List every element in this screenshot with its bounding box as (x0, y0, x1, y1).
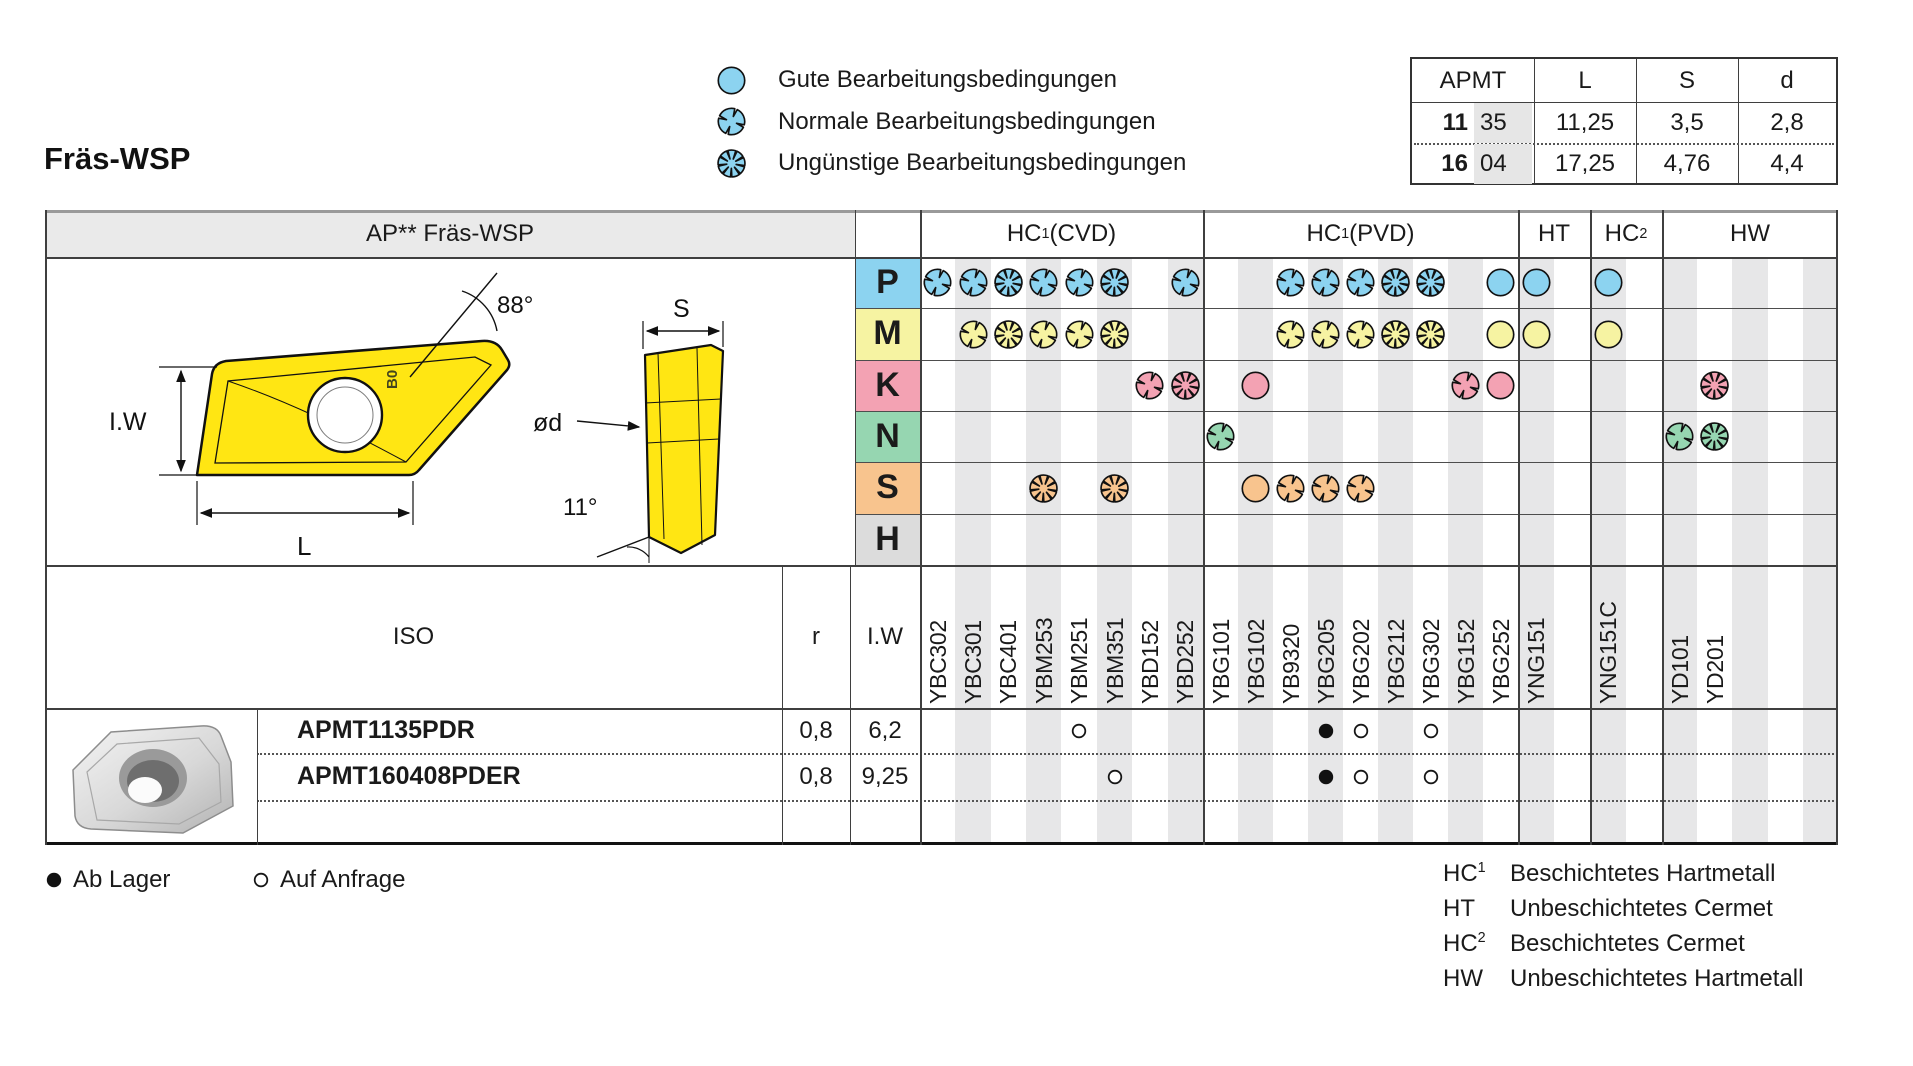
unfavorable-condition-icon (715, 147, 748, 180)
clearance-angle-label: 11° (563, 494, 598, 521)
application-group-badge-M: M (855, 308, 920, 359)
corner-radius-value: 0,8 (782, 753, 850, 800)
suitability-cell-K-YBD152 (1133, 369, 1166, 402)
dimension-table: APMTLSd113511,253,52,8160417,254,764,4 (1410, 57, 1838, 185)
unfavorable-condition-icon (1414, 318, 1447, 351)
good-condition-icon (1592, 318, 1625, 351)
suitability-cell-S-YBM253 (1027, 472, 1060, 505)
group-divider (1590, 210, 1592, 845)
normal-condition-icon (957, 266, 990, 299)
material-code: HW (1443, 965, 1503, 993)
insert-size-rest: 04 (1480, 144, 1532, 184)
dim-value: 17,25 (1534, 144, 1636, 184)
group-divider (1518, 210, 1520, 845)
stock-legend-item: Auf Anfrage (252, 862, 405, 898)
insert-designation: APMT1135PDR (297, 708, 475, 753)
suitability-cell-P-YBD252 (1169, 266, 1202, 299)
grade-column-label: YBD152 (1137, 564, 1163, 704)
on-request-circle-icon (252, 871, 270, 889)
availability-stock-YBG205 (1317, 768, 1335, 786)
grade-column-label: YB9320 (1278, 564, 1304, 704)
insert-size-bold: 11 (1412, 103, 1468, 143)
grade-column-label: YBG202 (1348, 564, 1374, 704)
divider (782, 565, 783, 845)
normal-condition-icon (715, 105, 748, 138)
suitability-cell-M-YNG151 (1520, 318, 1553, 351)
table-border-right (1836, 210, 1838, 845)
insert-size-bold: 16 (1412, 144, 1468, 184)
good-condition-icon (1520, 266, 1553, 299)
dim-col-header: S (1636, 59, 1738, 102)
suitability-cell-P-YBC302 (921, 266, 954, 299)
grade-column-label: YBG101 (1208, 564, 1234, 704)
left-header-cell: AP** Fräs-WSP (45, 210, 855, 257)
group-divider (1662, 210, 1664, 845)
grade-column-label: YD101 (1667, 564, 1693, 704)
on-request-circle-icon (1106, 768, 1124, 786)
material-type-legend: HC1Beschichtetes HartmetallHTUnbeschicht… (1443, 860, 1913, 1010)
good-condition-icon (1484, 318, 1517, 351)
suitability-cell-M-YBG302 (1414, 318, 1447, 351)
normal-condition-icon (1204, 420, 1237, 453)
stock-legend-label: Ab Lager (73, 866, 170, 894)
grade-column-stripe (1238, 257, 1273, 845)
length-dimension-label: L (297, 531, 311, 561)
normal-condition-icon (957, 318, 990, 351)
unfavorable-condition-icon (1098, 472, 1131, 505)
suitability-cell-P-YBM251 (1063, 266, 1096, 299)
unfavorable-condition-icon (992, 266, 1025, 299)
technical-drawing: B0 88° I.W L S ød 11° (45, 257, 855, 565)
suitability-cell-K-YBG152 (1449, 369, 1482, 402)
stock-legend-label: Auf Anfrage (280, 866, 405, 894)
suitability-cell-M-YBG252 (1484, 318, 1517, 351)
grade-column-label: YBC401 (995, 564, 1021, 704)
normal-condition-icon (1663, 420, 1696, 453)
insert-size-rest: 35 (1480, 103, 1532, 143)
corner-radius-value: 0,8 (782, 708, 850, 753)
suitability-cell-P-YBG252 (1484, 266, 1517, 299)
coating-group-header: HT (1518, 210, 1590, 257)
stock-legend-item: Ab Lager (45, 862, 170, 898)
hole-diameter-label: ød (533, 409, 562, 437)
grade-column-label: YBM351 (1102, 564, 1128, 704)
suitability-cell-M-YBC401 (992, 318, 1025, 351)
application-group-badge-K: K (855, 360, 920, 411)
stock-dot-icon (45, 871, 63, 889)
suitability-cell-N-YBG101 (1204, 420, 1237, 453)
stock-legend: Ab Lager Auf Anfrage (45, 862, 545, 898)
availability-request-YBM351 (1106, 768, 1124, 786)
dim-value: 11,25 (1534, 103, 1636, 143)
grade-column-stripe (1732, 257, 1767, 845)
divider (257, 753, 1838, 755)
on-request-circle-icon (1070, 722, 1088, 740)
divider (855, 462, 1838, 463)
availability-request-YBM251 (1070, 722, 1088, 740)
suitability-cell-K-YBD252 (1169, 369, 1202, 402)
divider (257, 708, 258, 845)
grade-column-label: YNG151 (1523, 564, 1549, 704)
on-request-circle-icon (1422, 768, 1440, 786)
divider (45, 565, 1838, 567)
grade-column-label: YBD252 (1172, 564, 1198, 704)
grade-column-label: YBC301 (960, 564, 986, 704)
suitability-cell-M-YBC301 (957, 318, 990, 351)
grade-column-label: YBG212 (1383, 564, 1409, 704)
availability-request-YBG302 (1422, 722, 1440, 740)
group-divider (920, 210, 922, 845)
availability-request-YBG302 (1422, 768, 1440, 786)
condition-legend-label: Gute Bearbeitungsbedingungen (778, 66, 1117, 94)
divider (855, 308, 1838, 309)
suitability-cell-K-YBG252 (1484, 369, 1517, 402)
normal-condition-icon (1344, 266, 1377, 299)
iw-value: 6,2 (850, 708, 920, 753)
suitability-cell-P-YNG151 (1520, 266, 1553, 299)
suitability-cell-P-YBG205 (1309, 266, 1342, 299)
availability-request-YBG202 (1352, 722, 1370, 740)
normal-condition-icon (1133, 369, 1166, 402)
suitability-cell-M-YBM351 (1098, 318, 1131, 351)
condition-legend-item: Ungünstige Bearbeitungsbedingungen (715, 146, 1186, 180)
grade-column-label: YBG205 (1313, 564, 1339, 704)
grade-column-stripe (1803, 257, 1838, 845)
dim-value: 3,5 (1636, 103, 1738, 143)
good-condition-icon (1520, 318, 1553, 351)
coating-group-header: HW (1662, 210, 1838, 257)
grade-column-label: YBM251 (1066, 564, 1092, 704)
application-group-badge-S: S (855, 462, 920, 513)
unfavorable-condition-icon (1379, 266, 1412, 299)
suitability-cell-M-YBG212 (1379, 318, 1412, 351)
grade-column-stripe (1448, 257, 1483, 845)
material-label: Unbeschichtetes Cermet (1510, 895, 1773, 923)
divider (855, 514, 1838, 515)
normal-condition-icon (921, 266, 954, 299)
availability-stock-YBG205 (1317, 722, 1335, 740)
dim-value: 4,76 (1636, 144, 1738, 184)
normal-condition-icon (1027, 266, 1060, 299)
suitability-cell-M-YNG151C (1592, 318, 1625, 351)
suitability-cell-P-YBG212 (1379, 266, 1412, 299)
normal-condition-icon (1309, 318, 1342, 351)
material-code: HC2 (1443, 930, 1503, 958)
grade-column-label: YBG102 (1243, 564, 1269, 704)
coating-group-header: HC2 (1590, 210, 1662, 257)
unfavorable-condition-icon (1098, 266, 1131, 299)
stock-dot-icon (1317, 722, 1335, 740)
good-condition-icon (1484, 266, 1517, 299)
material-label: Beschichtetes Hartmetall (1510, 860, 1775, 888)
grade-column-label: YBG302 (1418, 564, 1444, 704)
unfavorable-condition-icon (1169, 369, 1202, 402)
dim-value: 2,8 (1738, 103, 1836, 143)
grade-column-label: YBM253 (1031, 564, 1057, 704)
material-label: Beschichtetes Cermet (1510, 930, 1745, 958)
grade-column-label: YBG252 (1488, 564, 1514, 704)
normal-condition-icon (1309, 472, 1342, 505)
normal-condition-icon (1063, 318, 1096, 351)
on-request-circle-icon (1422, 722, 1440, 740)
grade-application-matrix: AP** Fräs-WSPHC1 (CVD)HC1 (PVD)HTHC2HWPM… (45, 210, 1838, 845)
availability-request-YBG202 (1352, 768, 1370, 786)
iw-column-header: I.W (850, 565, 920, 708)
normal-condition-icon (1309, 266, 1342, 299)
table-border-top (45, 210, 1838, 213)
divider (855, 411, 1838, 412)
left-header-label: AP** Fräs-WSP (45, 210, 855, 257)
suitability-cell-S-YBG205 (1309, 472, 1342, 505)
angle-88-label: 88° (497, 292, 533, 319)
suitability-cell-P-YBM253 (1027, 266, 1060, 299)
insert-face-mark: B0 (384, 370, 401, 389)
suitability-cell-M-YBG202 (1344, 318, 1377, 351)
normal-condition-icon (1449, 369, 1482, 402)
unfavorable-condition-icon (1379, 318, 1412, 351)
condition-legend-item: Gute Bearbeitungsbedingungen (715, 63, 1117, 97)
suitability-cell-P-YBG302 (1414, 266, 1447, 299)
unfavorable-condition-icon (1414, 266, 1447, 299)
grade-column-stripe (1662, 257, 1697, 845)
suitability-cell-P-YBG202 (1344, 266, 1377, 299)
divider (850, 565, 851, 845)
suitability-cell-K-YD201 (1698, 369, 1731, 402)
condition-legend-item: Normale Bearbeitungsbedingungen (715, 105, 1156, 139)
suitability-cell-S-YBM351 (1098, 472, 1131, 505)
grade-column-label: YBG152 (1453, 564, 1479, 704)
application-group-badge-N: N (855, 411, 920, 462)
unfavorable-condition-icon (1698, 369, 1731, 402)
suitability-cell-P-YBC301 (957, 266, 990, 299)
grade-column-label: YNG151C (1595, 564, 1621, 704)
group-divider (1203, 210, 1205, 845)
suitability-cell-M-YB9320 (1274, 318, 1307, 351)
good-condition-icon (715, 64, 748, 97)
application-group-badge-P: P (855, 257, 920, 308)
good-condition-icon (1239, 472, 1272, 505)
normal-condition-icon (1027, 318, 1060, 351)
divider (45, 708, 1838, 710)
on-request-circle-icon (1352, 768, 1370, 786)
unfavorable-condition-icon (1027, 472, 1060, 505)
normal-condition-icon (1344, 472, 1377, 505)
suitability-cell-K-YBG102 (1239, 369, 1272, 402)
normal-condition-icon (1344, 318, 1377, 351)
normal-condition-icon (1169, 266, 1202, 299)
suitability-cell-N-YD201 (1698, 420, 1731, 453)
normal-condition-icon (1274, 266, 1307, 299)
unfavorable-condition-icon (992, 318, 1025, 351)
coating-group-header: HC1 (CVD) (920, 210, 1203, 257)
dim-col-header: L (1534, 59, 1636, 102)
material-code: HC1 (1443, 860, 1503, 888)
normal-condition-icon (1274, 472, 1307, 505)
stock-dot-icon (1317, 768, 1335, 786)
dim-col-header: APMT (1412, 59, 1534, 102)
catalog-page: Fräs-WSP Gute Bearbeitungsbedingungen No… (0, 0, 1913, 1066)
grade-column-label: YD201 (1702, 564, 1728, 704)
suitability-cell-P-YB9320 (1274, 266, 1307, 299)
suitability-cell-P-YBC401 (992, 266, 1025, 299)
unfavorable-condition-icon (1098, 318, 1131, 351)
suitability-cell-P-YNG151C (1592, 266, 1625, 299)
divider (855, 360, 1838, 361)
suitability-cell-M-YBG205 (1309, 318, 1342, 351)
divider (257, 800, 1838, 802)
normal-condition-icon (1274, 318, 1307, 351)
dim-col-header: d (1738, 59, 1836, 102)
thickness-dimension-label: S (673, 295, 690, 323)
grade-column-label: YBC302 (925, 564, 951, 704)
suitability-cell-S-YB9320 (1274, 472, 1307, 505)
iw-dimension-label: I.W (109, 408, 147, 436)
unfavorable-condition-icon (1698, 420, 1731, 453)
insert-designation: APMT160408PDER (297, 753, 521, 800)
insert-photo (53, 712, 249, 842)
on-request-circle-icon (1352, 722, 1370, 740)
suitability-cell-S-YBG102 (1239, 472, 1272, 505)
radius-column-header: r (782, 565, 850, 708)
suitability-cell-S-YBG202 (1344, 472, 1377, 505)
coating-group-header: HC1 (PVD) (1203, 210, 1518, 257)
iw-value: 9,25 (850, 753, 920, 800)
grade-column-stripe (1168, 257, 1203, 845)
table-border-bottom (45, 842, 1838, 845)
iso-column-header: ISO (45, 565, 782, 708)
material-code: HT (1443, 895, 1503, 923)
condition-legend-label: Ungünstige Bearbeitungsbedingungen (778, 149, 1186, 177)
normal-condition-icon (1063, 266, 1096, 299)
divider (855, 210, 856, 565)
suitability-cell-M-YBM251 (1063, 318, 1096, 351)
dim-value: 4,4 (1738, 144, 1836, 184)
good-condition-icon (1592, 266, 1625, 299)
good-condition-icon (1484, 369, 1517, 402)
condition-legend-label: Normale Bearbeitungsbedingungen (778, 108, 1156, 136)
material-label: Unbeschichtetes Hartmetall (1510, 965, 1803, 993)
suitability-cell-P-YBM351 (1098, 266, 1131, 299)
application-group-badge-H: H (855, 514, 920, 565)
good-condition-icon (1239, 369, 1272, 402)
suitability-cell-M-YBM253 (1027, 318, 1060, 351)
suitability-cell-N-YD101 (1663, 420, 1696, 453)
